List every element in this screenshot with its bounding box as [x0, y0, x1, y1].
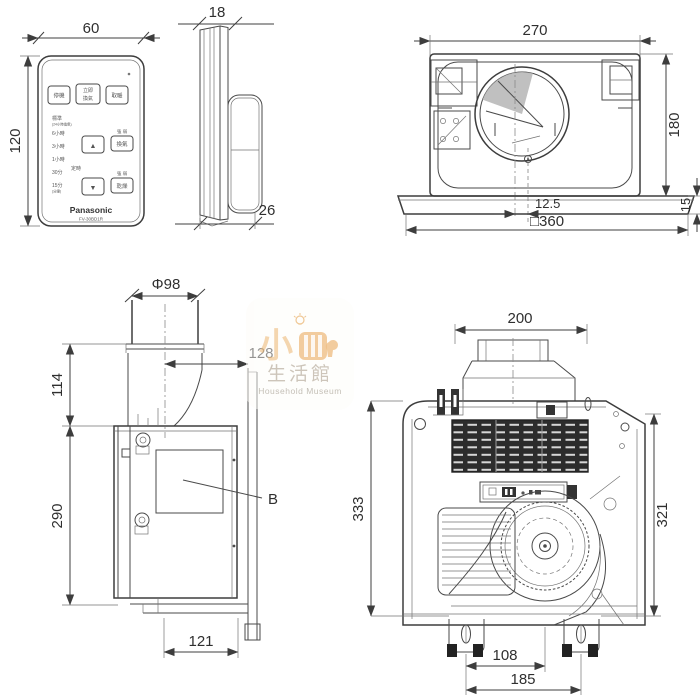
bottom-depth-dimension: 121 — [164, 618, 238, 658]
unit-bottom-view: 200 — [354, 294, 700, 700]
duct-shaded-sector — [483, 72, 533, 114]
remote-body — [38, 56, 144, 226]
instant-vent-label-2: 換氣 — [83, 95, 93, 102]
instant-vent-label-1: 立即 — [83, 87, 93, 94]
remote-width-dimension: 60 — [22, 20, 160, 44]
scale-15m-sub: (分鐘) — [52, 189, 61, 194]
timer-label: 定時 — [71, 165, 81, 172]
watermark-logo: 小 生活館 Household Museum — [246, 298, 354, 410]
dim-label-108: 108 — [492, 647, 517, 664]
lantern-wrench-icon — [295, 328, 341, 364]
bottom-right-height-dimension: 321 — [601, 414, 671, 616]
dim-label-120: 120 — [7, 128, 24, 153]
dim-label-121: 121 — [188, 633, 213, 650]
remote-side-view: 18 26 — [170, 0, 282, 232]
unit-top-view: 270 — [394, 8, 700, 240]
scale-15m: 15分 — [52, 182, 63, 189]
dim-label-phi98: Φ98 — [152, 276, 181, 293]
stop-button-label: 停機 — [53, 92, 65, 100]
remote-depth-dimension: 26 — [175, 202, 275, 230]
dim-label-360: □360 — [530, 213, 564, 230]
duct-diameter-dimension: Φ98 — [125, 276, 205, 302]
heater-grille — [452, 420, 588, 472]
up-arrow-icon: ▲ — [90, 143, 97, 150]
dim-label-15: 15 — [678, 198, 693, 212]
dim-label-18: 18 — [209, 4, 226, 21]
scale-6h: 6小時 — [52, 130, 65, 137]
remote-front-view: 60 120 停機 立即 換氣 取暖 標準 (24小時換氣) 6小時 3小時 1… — [8, 8, 176, 240]
dim-label-200: 200 — [507, 310, 532, 327]
fan-scroll — [490, 476, 624, 625]
bottom-duct — [463, 338, 575, 404]
scale-1h: 1小時 — [52, 156, 65, 163]
dim-label-321: 321 — [654, 502, 671, 527]
callout-label-b: B — [268, 491, 278, 508]
dim-label-12-5: 12.5 — [535, 196, 560, 211]
latch — [122, 449, 130, 457]
vent-button-label: 換氣 — [116, 140, 128, 148]
watermark-en: Household Museum — [258, 386, 342, 396]
indicator-led — [128, 73, 131, 76]
remote-side-profile — [200, 26, 262, 226]
brand-logo: Panasonic — [70, 205, 113, 215]
remote-arrow-buttons: ▲ 定時 ▼ — [71, 136, 104, 195]
dry-button-label: 乾燥 — [116, 182, 128, 190]
top-offset-dimension: 12.5 — [494, 196, 572, 214]
dim-label-26: 26 — [259, 202, 276, 219]
top-square-dimension: □360 — [406, 213, 688, 236]
remote-thickness-dimension: 18 — [178, 4, 274, 30]
scale-30m: 30分 — [52, 169, 63, 176]
top-width-dimension: 270 — [414, 22, 656, 56]
dim-label-114: 114 — [49, 373, 66, 397]
top-flange-dimension: 15 — [678, 178, 700, 232]
model-number: FV-30BD1R — [79, 217, 104, 222]
technical-drawing-page: 60 120 停機 立即 換氣 取暖 標準 (24小時換氣) 6小時 3小時 1… — [0, 0, 700, 700]
down-arrow-icon: ▼ — [90, 185, 97, 192]
duct-height-dimension: 114 — [49, 344, 126, 426]
remote-timer-scale: 標準 (24小時換氣) 6小時 3小時 1小時 30分 15分 (分鐘) — [52, 115, 72, 194]
side-body: B — [114, 368, 278, 640]
dim-label-180: 180 — [666, 112, 683, 137]
vent-strength-label: 強 弱 — [117, 128, 128, 135]
dim-label-270: 270 — [522, 22, 547, 39]
bottom-left-height-dimension: 333 — [350, 401, 449, 616]
dim-label-333: 333 — [350, 496, 367, 521]
body-height-dimension: 290 — [49, 426, 118, 605]
bottom-body — [403, 389, 645, 657]
top-height-dimension: 180 — [640, 54, 683, 196]
scale-3h: 3小時 — [52, 143, 65, 150]
scale-standard: 標準 — [52, 115, 62, 122]
dim-label-185: 185 — [510, 671, 535, 688]
wall-holder — [228, 95, 262, 213]
dim-label-290: 290 — [49, 503, 66, 528]
dim-label-60: 60 — [83, 20, 100, 37]
heat-button-label: 取暖 — [111, 92, 123, 100]
watermark-cn-prefix: 小 — [259, 329, 293, 363]
dry-strength-label: 強 弱 — [117, 170, 128, 177]
bolt-span-dimension: 185 — [466, 654, 581, 695]
bottom-duct-dimension: 200 — [455, 310, 587, 344]
remote-top-buttons: 停機 立即 換氣 取暖 — [48, 84, 128, 104]
remote-height-dimension: 120 — [7, 56, 40, 226]
remote-right-buttons: 強 弱 換氣 強 弱 乾燥 — [111, 128, 133, 193]
scale-standard-sub: (24小時換氣) — [52, 122, 72, 127]
watermark-cn-main: 生活館 — [267, 364, 333, 387]
